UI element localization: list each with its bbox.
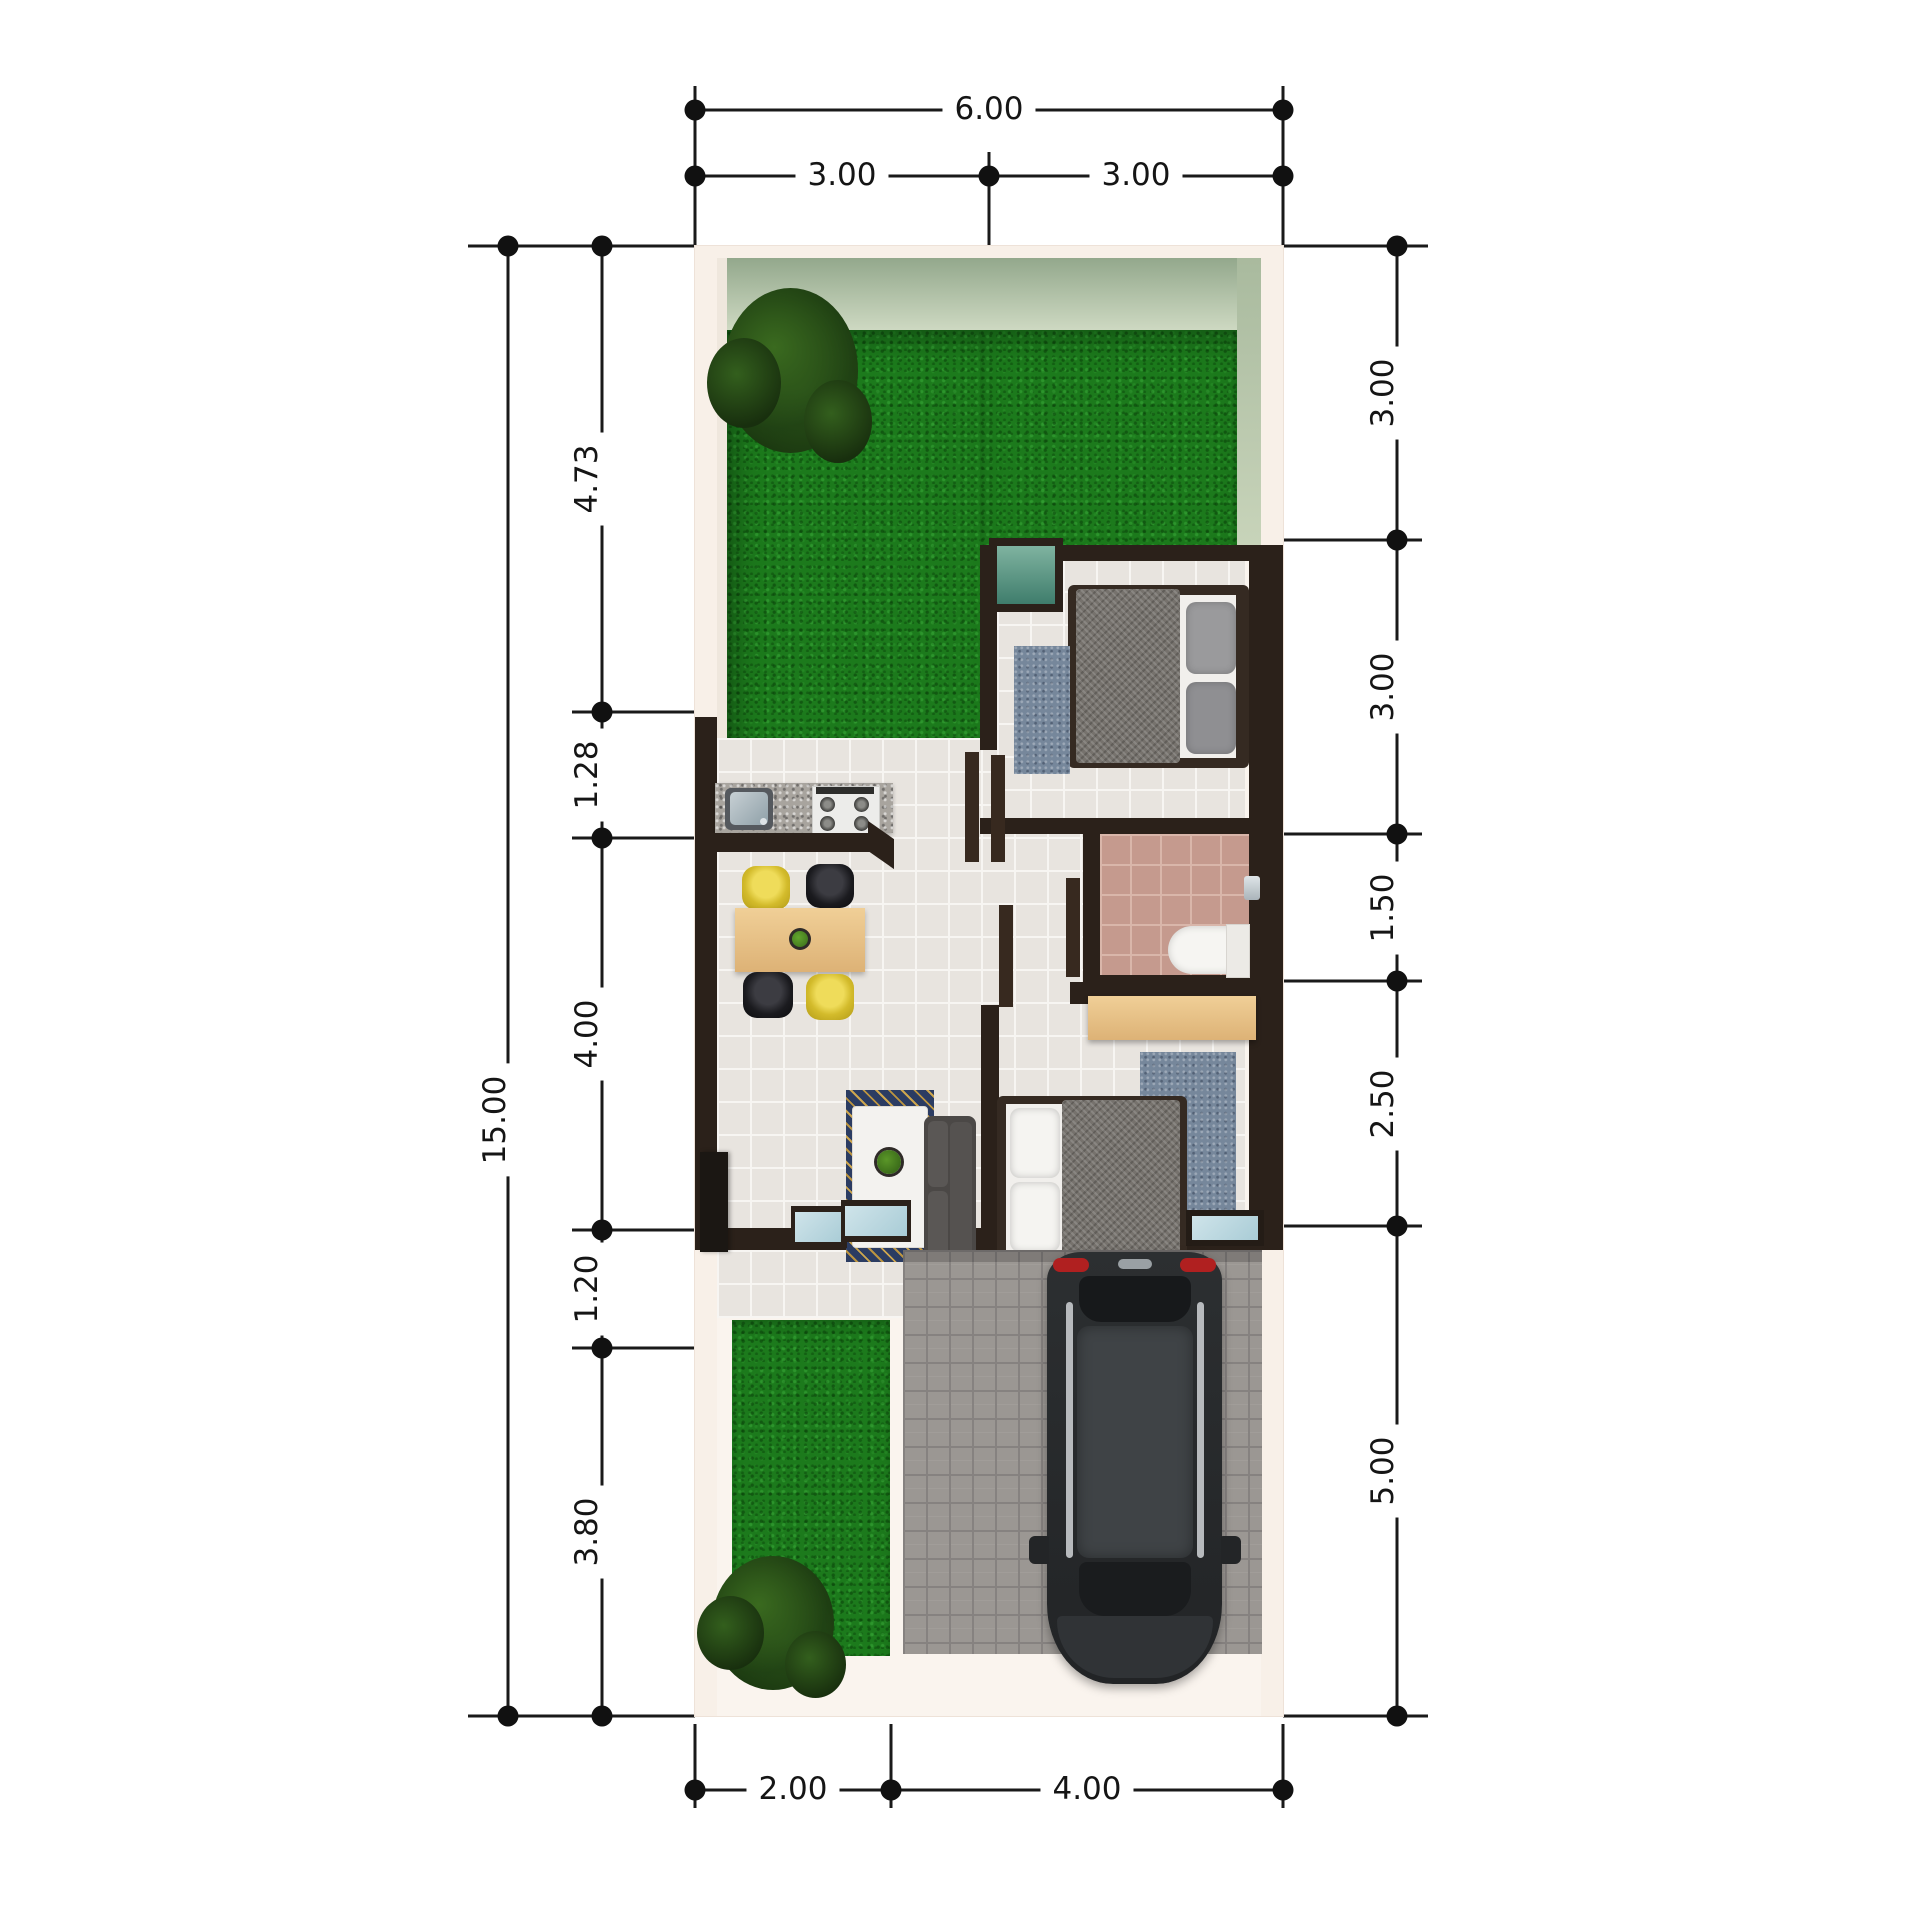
car-roof-rail-right: [1197, 1302, 1204, 1558]
bedroom1-door-leaf-1: [965, 752, 979, 862]
car-logo-badge: [1118, 1259, 1152, 1269]
right-wall-inner-face: [1237, 258, 1261, 558]
dim-left-overall: 15.00: [478, 1064, 514, 1177]
stove-burner-2: [854, 797, 869, 812]
dim-right-seg-2: 3.00: [1366, 640, 1402, 733]
dim-right-seg-4: 2.50: [1366, 1057, 1402, 1150]
bedroom1-window-glass: [997, 546, 1055, 604]
dim-left-seg-5: 3.80: [570, 1485, 606, 1578]
bedroom2-front-window-glass: [1192, 1216, 1258, 1240]
bedroom2-pillow-1: [1010, 1108, 1060, 1178]
dim-left-seg-3: 4.00: [570, 987, 606, 1080]
dim-right-seg-3: 1.50: [1366, 861, 1402, 954]
terrace-door-glass-2: [845, 1206, 907, 1236]
stove-burner-1: [820, 797, 835, 812]
coffee-table-plant: [877, 1150, 901, 1174]
dining-plant: [792, 931, 808, 947]
bathroom-wall-left: [1083, 834, 1100, 979]
dim-top-seg-2: 3.00: [1089, 158, 1182, 194]
bedroom2-blanket: [1062, 1100, 1180, 1260]
tv-panel: [700, 1152, 728, 1252]
dim-top-seg-1: 3.00: [795, 158, 888, 194]
car-windshield: [1079, 1562, 1191, 1616]
bathroom-wall-bottom: [1083, 975, 1283, 997]
dim-bottom-seg-1: 2.00: [746, 1772, 839, 1808]
dim-left-seg-2: 1.28: [570, 728, 606, 821]
sofa-back-cushion-2: [928, 1191, 948, 1259]
bedroom1-rug: [1014, 646, 1070, 774]
car-roof-rail-left: [1066, 1302, 1073, 1558]
bedroom2-dresser: [1088, 996, 1256, 1040]
dim-top-overall: 6.00: [942, 92, 1035, 128]
dim-left-seg-4: 1.20: [570, 1242, 606, 1335]
sofa-back-cushion-1: [928, 1121, 948, 1187]
car-taillight-right: [1180, 1258, 1216, 1272]
bedroom1-door-leaf-2: [991, 755, 1005, 862]
dim-left-seg-1: 4.73: [570, 432, 606, 525]
front-garden-bush: [712, 1556, 834, 1690]
bedroom1-pillow-2: [1186, 682, 1236, 754]
bedroom2-pillow-2: [1010, 1182, 1060, 1252]
car-taillight-left: [1053, 1258, 1089, 1272]
car-roof: [1077, 1326, 1193, 1558]
bedroom2-door-leaf: [999, 905, 1013, 1007]
bedroom1-blanket: [1076, 589, 1180, 763]
toilet-bowl: [1168, 926, 1234, 974]
car-mirror-right: [1221, 1536, 1241, 1564]
stove-burner-4: [854, 816, 869, 831]
car-mirror-left: [1029, 1536, 1049, 1564]
dining-chair-black-2: [743, 972, 793, 1018]
sofa-seat: [950, 1122, 972, 1258]
dim-right-seg-5: 5.00: [1366, 1424, 1402, 1517]
car-rear-window: [1079, 1276, 1191, 1322]
kitchen-counter-base: [705, 833, 880, 852]
bedroom1-wall-bottom: [980, 818, 1283, 834]
toilet-tank: [1226, 924, 1250, 978]
dim-right-seg-1: 3.00: [1366, 346, 1402, 439]
bedroom1-pillow-1: [1186, 602, 1236, 674]
dining-chair-black-1: [806, 864, 854, 908]
back-garden-grass-right: [980, 330, 1237, 545]
bathroom-door-leaf: [1066, 878, 1080, 977]
dining-chair-yellow-1: [742, 866, 790, 910]
dining-chair-yellow-2: [806, 974, 854, 1020]
kitchen-stove-controls: [816, 787, 874, 794]
stove-burner-3: [820, 816, 835, 831]
shower-fitting-icon: [1244, 876, 1260, 900]
dim-bottom-seg-2: 4.00: [1040, 1772, 1133, 1808]
floorplan-sheet: 6.00 3.00 3.00 15.00 4.73 1.28 4.00 1.20…: [0, 0, 1920, 1920]
kitchen-sink-faucet: [760, 818, 767, 825]
back-garden-bush: [723, 288, 858, 453]
terrace-door-glass-1: [795, 1212, 843, 1242]
left-wall-inner-face: [717, 258, 727, 740]
